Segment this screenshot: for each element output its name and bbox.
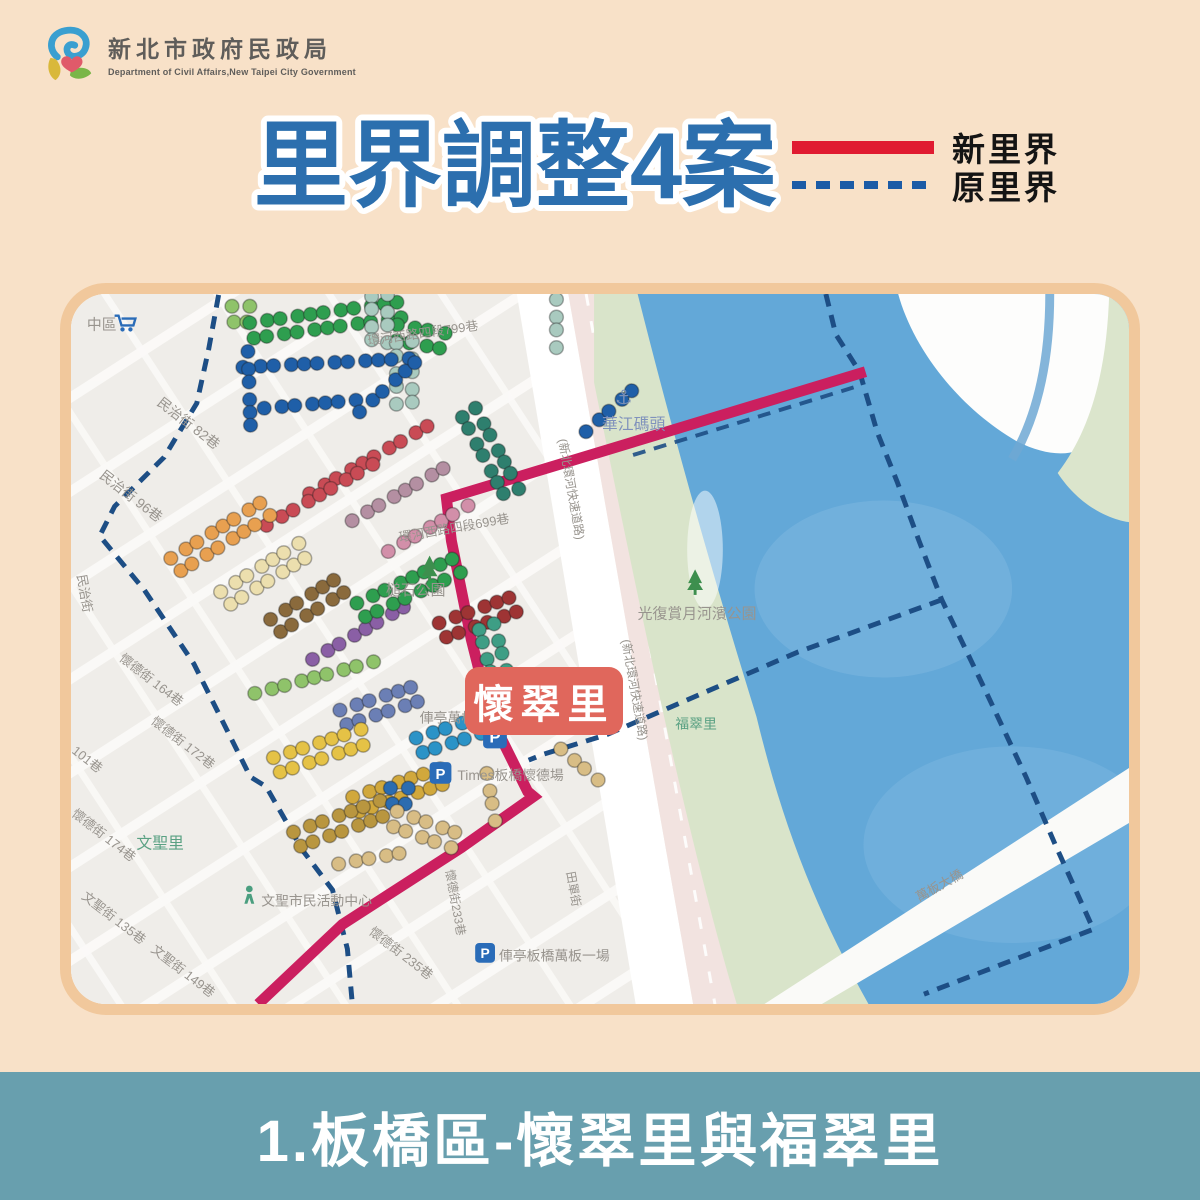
map-label: 文聖里 <box>136 835 184 853</box>
map-label: 槌石公園 <box>386 582 445 599</box>
map-label: 中區 <box>87 316 117 333</box>
org-name: 新北市政府民政局 <box>108 30 356 64</box>
old-boundary-line-swatch <box>792 181 934 189</box>
map-label: Times板橋懷德場 <box>457 767 564 783</box>
map-label: 華江碼頭 <box>602 416 666 434</box>
legend-row-old: 原里界 <box>792 166 1122 204</box>
map-label: 俥亭板橋萬板一場 <box>499 948 610 964</box>
map-panel: ⚓ P P P 中區 民治街 82巷 民治街 96巷 環河西路四段799巷 華江… <box>60 283 1140 1015</box>
parking-icon: P <box>436 767 446 783</box>
page-title: 里界調整4案 <box>254 113 777 218</box>
agency-logo: 新北市政府民政局 Department of Civil Affairs,New… <box>36 22 356 84</box>
map-label: 文聖市民活動中心 <box>261 893 372 909</box>
village-badge-huaicui: 懷翠里 <box>465 667 623 735</box>
footer-caption: 1.板橋區-懷翠里與福翠里 <box>257 1094 944 1178</box>
legend-label-old: 原里界 <box>952 161 1060 209</box>
parking-icon: P <box>480 945 489 961</box>
anchor-icon: ⚓ <box>615 387 633 409</box>
new-boundary-line-swatch <box>792 141 934 154</box>
map-canvas: ⚓ P P P 中區 民治街 82巷 民治街 96巷 環河西路四段799巷 華江… <box>71 294 1129 1004</box>
page-title-wrap: 里界調整4案 <box>225 96 805 226</box>
org-name-en: Department of Civil Affairs,New Taipei C… <box>108 67 356 77</box>
footer-band: 1.板橋區-懷翠里與福翠里 <box>0 1072 1200 1200</box>
agency-logo-icon <box>36 22 98 84</box>
map-label: 光復賞月河濱公園 <box>638 606 757 623</box>
legend: 新里界 原里界 <box>792 128 1122 204</box>
map-label: 福翠里 <box>675 716 717 732</box>
